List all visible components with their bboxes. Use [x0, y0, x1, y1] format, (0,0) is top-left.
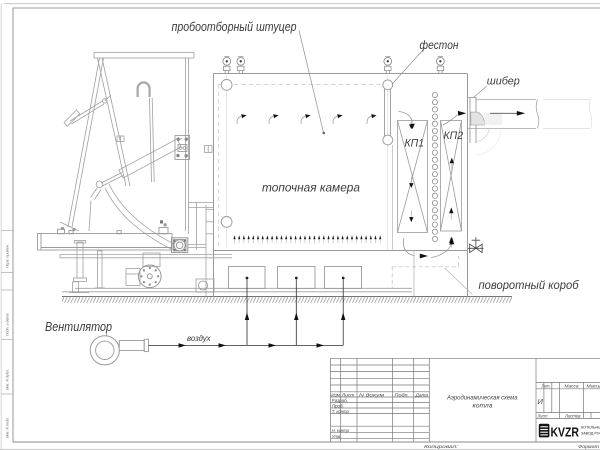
- svg-text:Масса: Масса: [565, 384, 579, 390]
- svg-text:KVZR: KVZR: [551, 425, 580, 440]
- svg-text:Вентилятор: Вентилятор: [45, 320, 112, 334]
- svg-text:Формат: Формат: [578, 444, 599, 450]
- svg-text:Копировал:: Копировал:: [424, 444, 459, 450]
- svg-text:Н. контр: Н. контр: [332, 428, 349, 434]
- svg-text:Дата: Дата: [415, 392, 429, 398]
- svg-text:шибер: шибер: [487, 76, 520, 88]
- svg-text:Аэродинамическая схема: Аэродинамическая схема: [446, 394, 518, 402]
- svg-text:Лист: Лист: [341, 392, 355, 398]
- svg-text:Подп. и дата: Подп. и дата: [6, 314, 10, 337]
- svg-text:Инв. N подл.: Инв. N подл.: [6, 417, 10, 438]
- svg-text:Проб.: Проб.: [332, 403, 344, 409]
- svg-text:N докум: N докум: [359, 392, 385, 398]
- svg-text:Лит.: Лит.: [541, 384, 551, 390]
- svg-text:пробоотборный штуцер: пробоотборный штуцер: [172, 20, 297, 34]
- svg-text:Масш: Масш: [587, 384, 600, 390]
- svg-text:КОТЕЛЬНЫЙ: КОТЕЛЬНЫЙ: [581, 426, 600, 430]
- svg-text:Разраб.: Разраб.: [332, 398, 348, 404]
- svg-text:топочная камера: топочная камера: [262, 182, 360, 194]
- svg-text:воздух: воздух: [187, 334, 211, 343]
- svg-text:Инв. N дубл.: Инв. N дубл.: [6, 369, 10, 390]
- svg-text:Подп.: Подп.: [395, 392, 410, 398]
- svg-text:И: И: [538, 397, 544, 406]
- svg-text:Лист: Лист: [537, 414, 548, 420]
- svg-text:КП1: КП1: [405, 138, 425, 150]
- svg-text:фестон: фестон: [420, 40, 460, 52]
- svg-text:Перв. примен.: Перв. примен.: [6, 244, 10, 268]
- svg-text:котла: котла: [473, 402, 493, 409]
- svg-text:Изм: Изм: [331, 392, 340, 398]
- svg-text:ЗАВОД РОСС: ЗАВОД РОСС: [581, 432, 600, 436]
- svg-text:Листов: Листов: [564, 414, 581, 420]
- svg-text:Т. контр: Т. контр: [332, 409, 349, 415]
- svg-text:поворотный короб: поворотный короб: [479, 278, 580, 292]
- svg-text:КП2: КП2: [444, 130, 464, 142]
- svg-text:Утв.: Утв.: [332, 434, 342, 440]
